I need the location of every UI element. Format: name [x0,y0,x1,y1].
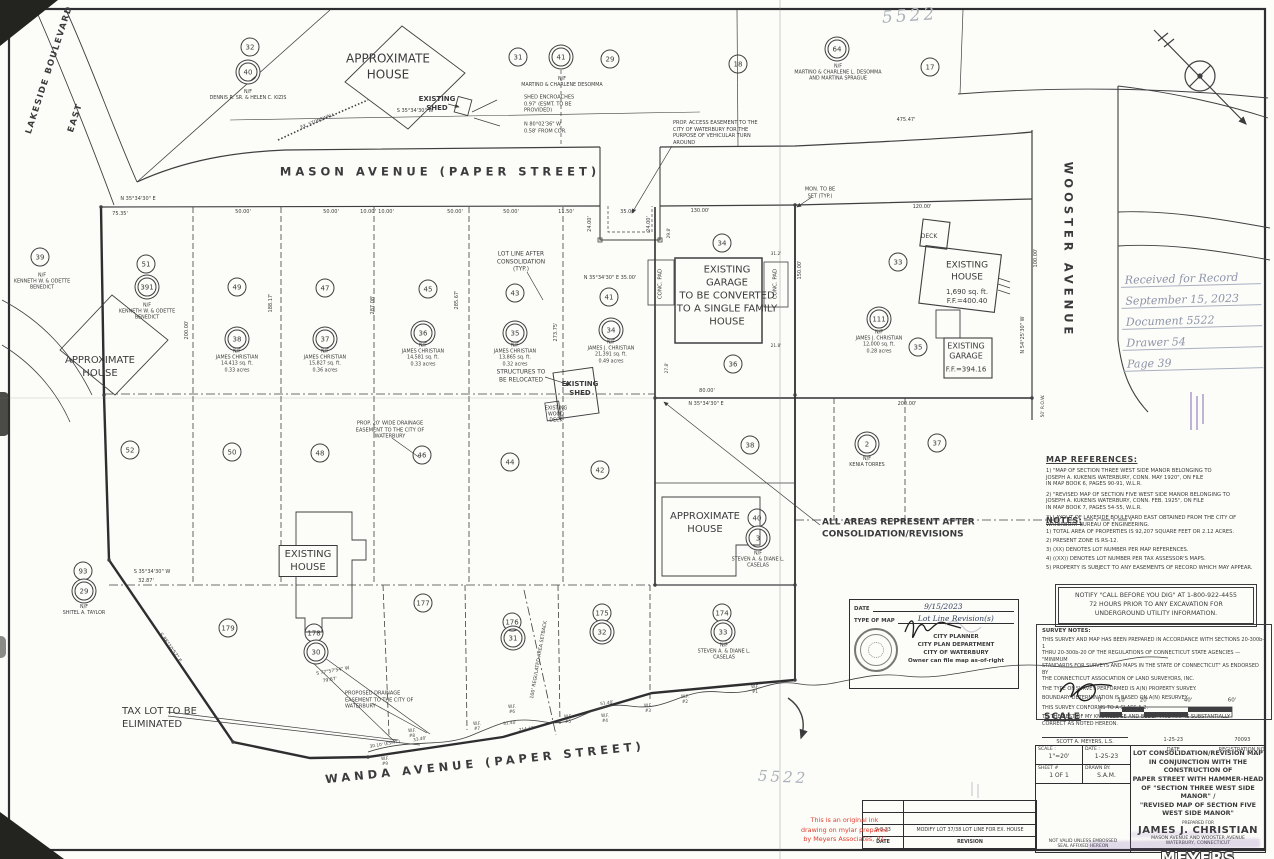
fold-crease [779,0,781,859]
drawnby-field-value: S.A.M. [1085,772,1128,779]
received-line: Received for Record [1121,270,1261,288]
clerk-stamp-fragment [1196,396,1198,430]
note-item: 2) PRESENT ZONE IS RS-12. [1046,538,1266,545]
received-for-record-note: Received for RecordSeptember 15, 2023Doc… [1121,270,1264,379]
survey-note-paragraph: BOUNDARY DETERMINATION IS BASED ON A(N) … [1042,695,1266,702]
document-number-pencil: 5522 [881,4,938,28]
stamp-type-label: TYPE OF MAP [854,618,895,624]
survey-note-paragraph: THIS SURVEY AND MAP HAS BEEN PREPARED IN… [1042,637,1266,683]
notes-heading: NOTES: [1046,516,1266,526]
original-ink-note: This is an original ink drawing on mylar… [782,816,907,845]
received-line: Page 39 [1123,354,1263,372]
clerk-stamp-fragment [1190,392,1192,430]
stamp-date-value: 9/15/2023 [873,602,1014,612]
scan-edge-artifact [0,636,6,658]
city-stamp-block: DATE 9/15/2023 TYPE OF MAP Lot Line Revi… [849,599,1019,689]
firm-name: MEYERS ASSOCIATES P.C. [1131,849,1265,859]
scale-field-label: SCALE : [1038,747,1056,752]
note-item: 4) ((XX)) DENOTES LOT NUMBER PER TAX ASS… [1046,556,1266,563]
stamp-date-label: DATE [854,606,870,612]
stamp-type-value: Lot Line Revision(s) [898,614,1014,624]
survey-notes-heading: SURVEY NOTES: [1042,628,1266,635]
north-arrow-icon [1154,30,1246,124]
survey-sheet: 3240314129186417395139149474543413837363… [0,0,1274,859]
map-reference-item: 1) "MAP OF SECTION THREE WEST SIDE MANOR… [1046,468,1260,488]
clerk-stamp-fragment [1202,394,1204,424]
registration-number: 70093 [1219,737,1266,745]
revision-header: REVISION [904,840,1036,845]
sheet-field-value: 1 OF 1 [1038,772,1080,779]
drawnby-field-label: DRAWN BY: [1085,766,1111,771]
scale-heading: SCALE [1044,712,1081,722]
sheet-field-label: SHEET # [1038,766,1058,771]
survey-notes-box: SURVEY NOTES: THIS SURVEY AND MAP HAS BE… [1036,624,1272,720]
survey-date-value: 1-25-23 [1158,737,1190,745]
map-reference-item: 2) "REVISED MAP OF SECTION FIVE WEST SID… [1046,492,1260,512]
revision-description: MODIFY LOT 37/38 LOT LINE FOR EX. HOUSE [904,828,1036,833]
note-item: 3) (XX) DENOTES LOT NUMBER PER MAP REFER… [1046,547,1266,554]
survey-note-paragraph: THE TYPE OF SURVEY PERFORMED IS A(N) PRO… [1042,686,1266,693]
scale-field-value: 1"=20' [1038,753,1080,760]
date-field-label: DATE : [1085,747,1100,752]
received-line: September 15, 2023 [1121,291,1261,309]
received-line: Drawer 54 [1122,333,1262,351]
notes-block: NOTES: 1) TOTAL AREA OF PROPERTIES IS 92… [1046,516,1266,574]
survey-note-paragraph: THIS SURVEY CONFORMS TO A CLASS A-2. [1042,705,1266,712]
map-title: LOT CONSOLIDATION/REVISION MAP IN CONJUN… [1131,746,1265,818]
note-item: 5) PROPERTY IS SUBJECT TO ANY EASEMENTS … [1046,565,1266,572]
call-before-dig-box: NOTIFY "CALL BEFORE YOU DIG" AT 1-800-92… [1058,587,1254,624]
map-references-heading: MAP REFERENCES: [1046,455,1260,465]
city-planner-stamp-text: CITY PLANNER CITY PLAN DEPARTMENT CITY O… [898,634,1014,665]
note-item: 1) TOTAL AREA OF PROPERTIES IS 92,207 SQ… [1046,529,1266,536]
received-line: Document 5522 [1122,312,1262,330]
city-seal-icon [854,628,898,672]
fold-crease [0,397,780,399]
call-before-dig-text: NOTIFY "CALL BEFORE YOU DIG" AT 1-800-92… [1062,592,1250,619]
date-field-value: 1-25-23 [1085,753,1128,760]
map-linework [0,0,1274,859]
document-number-pencil: 5522 [758,767,809,788]
